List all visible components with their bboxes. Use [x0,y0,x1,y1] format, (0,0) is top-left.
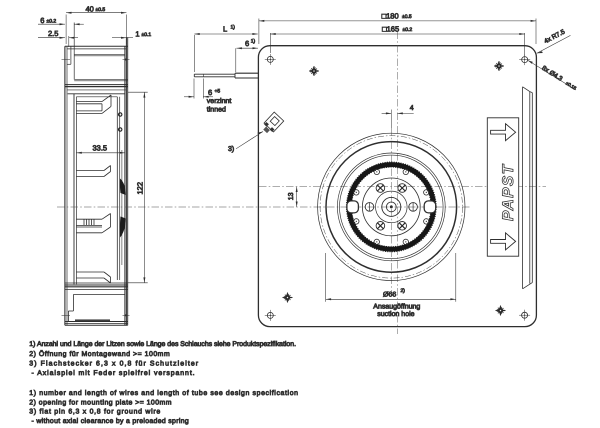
svg-text:3) Flachstecker 6,3 x 0,8 für: 3) Flachstecker 6,3 x 0,8 für Schutzleit… [29,361,199,368]
svg-text:4: 4 [410,105,414,112]
svg-text:3) flat pin 6,3 x 0,8 for grou: 3) flat pin 6,3 x 0,8 for ground wire [29,409,160,416]
svg-text:1): 1) [231,25,236,31]
svg-text:40: 40 [86,4,94,13]
svg-text:33.5: 33.5 [93,143,108,152]
svg-text:verzinnt: verzinnt [207,97,232,105]
svg-text:2) opening for mounting plate: 2) opening for mounting plate >= 100mm [29,399,171,406]
svg-text:3): 3) [228,145,234,153]
svg-text:±0.1: ±0.1 [142,32,152,38]
svg-text:2.5: 2.5 [48,29,58,38]
svg-text:±0.5: ±0.5 [96,7,106,13]
svg-text:122: 122 [135,182,144,195]
svg-text:□165: □165 [382,24,399,33]
svg-text:□180: □180 [382,11,399,20]
svg-text:suction hole: suction hole [377,310,414,318]
svg-text:±0.2: ±0.2 [47,19,57,25]
svg-text:1: 1 [135,29,139,38]
svg-text:Ø66: Ø66 [383,291,396,299]
svg-text:1) Anzahl und Länge der Litzen: 1) Anzahl und Länge der Litzen sowie Län… [29,341,296,348]
svg-text:2): 2) [401,288,406,294]
svg-text:- Axialspiel mit Feder spielf: - Axialspiel mit Feder spielfrei verspan… [32,370,195,377]
svg-text:4x R7.5: 4x R7.5 [543,28,566,45]
svg-text:tinned: tinned [207,105,226,113]
svg-text:- without axial clearance by: - without axial clearance by a preloaded… [32,418,189,425]
svg-text:13: 13 [288,192,295,200]
svg-text:PAPST: PAPST [500,163,517,221]
svg-text:Ansaugöffnung: Ansaugöffnung [373,303,420,311]
svg-text:6: 6 [245,39,249,48]
svg-text:±0.5: ±0.5 [402,14,412,20]
svg-text:+5: +5 [215,89,221,95]
svg-text:1) number and length of wires: 1) number and length of wires and length… [29,390,298,397]
svg-text:2) Öffnung für Montagewand >=: 2) Öffnung für Montagewand >= 100mm [29,350,170,358]
svg-text:±0.2: ±0.2 [403,27,413,33]
svg-text:L: L [223,25,227,34]
svg-text:8x Ø4.3: 8x Ø4.3 [540,65,563,83]
svg-text:6: 6 [40,16,44,25]
svg-text:1): 1) [251,39,256,45]
svg-text:6: 6 [208,88,212,97]
